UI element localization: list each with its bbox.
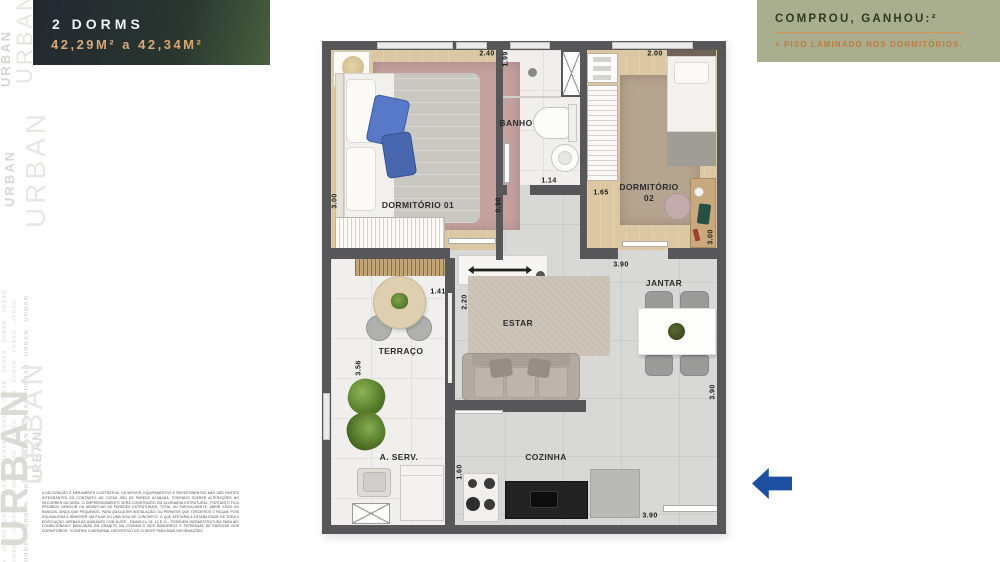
- living-rug: [468, 276, 610, 356]
- dimension-label: 1.60: [457, 464, 464, 479]
- room-label-living: ESTAR: [503, 318, 533, 328]
- window: [456, 42, 487, 49]
- service-cabinet: [352, 503, 390, 524]
- room-label-terrace: TERRAÇO: [379, 346, 424, 356]
- desk-cup: [694, 187, 704, 197]
- single-bed-blanket: [667, 132, 716, 166]
- bed-pillow: [346, 147, 376, 211]
- wall: [496, 50, 503, 260]
- page: URBAN URBAN URBAN URBAN URBAN URBAN URBA…: [0, 0, 1000, 562]
- wall: [322, 248, 450, 259]
- laptop: [697, 203, 711, 224]
- stove-burner: [484, 499, 495, 510]
- dimension-label: 3.90: [642, 513, 657, 520]
- dining-chair: [680, 355, 709, 376]
- unit-header: 2 DORMS 42,29M² a 42,34M²: [33, 0, 270, 65]
- dimension-label: 2.00: [647, 51, 662, 58]
- room-label-dining: JANTAR: [646, 278, 682, 288]
- dimension-label: 3.56: [356, 360, 363, 375]
- terrace-table-plant: [391, 293, 408, 309]
- room-label-bedroom2-number: 02: [644, 193, 654, 203]
- dimension-label: 3.00: [332, 193, 339, 208]
- outer-wall-right: [717, 41, 726, 534]
- window: [323, 393, 330, 440]
- stove-burner: [468, 479, 477, 488]
- sofa-back: [472, 354, 570, 366]
- dimension-label: 2.20: [462, 294, 469, 309]
- floor-plan: DORMITÓRIO 01 BANHO DORMITÓRIO 02 ESTAR …: [322, 41, 726, 534]
- sofa-pillow: [489, 358, 513, 379]
- dimension-label: 1.14: [541, 178, 556, 185]
- room-label-bedroom1: DORMITÓRIO 01: [382, 200, 454, 210]
- room-label-service: A. SERV.: [380, 452, 419, 462]
- dimension-label: 1.99: [503, 51, 510, 66]
- toilet-tank: [568, 104, 577, 142]
- window: [377, 42, 453, 49]
- dimension-label: 2.40: [479, 51, 494, 58]
- entrance-arrow-icon: [752, 468, 792, 499]
- watermark-text: URBAN: [0, 30, 13, 87]
- wall: [580, 248, 618, 259]
- promo-title: COMPROU, GANHOU:²: [775, 13, 938, 25]
- unit-type-title: 2 DORMS: [52, 16, 144, 32]
- bedroom2-closet: [587, 85, 618, 181]
- dimension-label: 3.90: [710, 384, 717, 399]
- unit-area-subtitle: 42,29M² a 42,34M²: [51, 37, 203, 52]
- wall: [668, 248, 717, 259]
- dimension-label: 3.90: [613, 262, 628, 269]
- shelf-items: [593, 75, 611, 80]
- kitchen-sink: [530, 491, 558, 508]
- shower-head: [528, 68, 537, 77]
- wardrobe: [335, 217, 445, 250]
- dimension-label: 1.41: [430, 289, 445, 296]
- legal-disclaimer: A DECORAÇÃO É MERAMENTE ILUSTRATIVA. OS …: [42, 491, 239, 534]
- single-bed-pillow: [674, 62, 709, 84]
- wall: [496, 185, 507, 195]
- wall: [530, 185, 587, 195]
- outer-wall-bottom: [322, 525, 726, 534]
- watermark-text: URBAN: [20, 110, 52, 228]
- fridge: [590, 469, 640, 518]
- shower-glass: [503, 96, 561, 98]
- dimension-label: 3.00: [708, 229, 715, 244]
- room-label-bathroom: BANHO: [499, 118, 532, 128]
- dining-chair: [645, 355, 673, 376]
- dimension-label: 1.65: [593, 190, 608, 197]
- washing-machine-lid-line: [400, 475, 444, 476]
- room-label-bedroom2: DORMITÓRIO: [619, 182, 678, 192]
- kitchen-pass-door: [455, 410, 503, 414]
- entrance-door: [663, 505, 719, 512]
- bedroom2-door: [622, 241, 668, 247]
- bedroom1-door: [448, 238, 496, 244]
- laundry-tank-basin: [363, 472, 386, 492]
- urban-watermark: URBAN URBAN URBAN URBAN URBAN URBAN URBA…: [0, 0, 60, 562]
- dimension-label: 0.90: [496, 197, 503, 212]
- stove-burner: [484, 478, 495, 489]
- bathroom-door: [504, 143, 510, 183]
- table-plant: [668, 323, 685, 340]
- toilet: [533, 107, 569, 139]
- pouf-chair: [664, 193, 691, 220]
- watermark-text: URBAN: [0, 385, 37, 547]
- window: [510, 42, 550, 49]
- shelf-items: [593, 57, 611, 62]
- sliding-glass-door: [448, 293, 452, 383]
- promo-bullet: + PISO LAMINADO NOS DORMITÓRIOS.: [775, 40, 963, 49]
- watermark-text: URBAN: [2, 150, 17, 207]
- shaft: [561, 50, 582, 97]
- outer-wall-left: [322, 41, 331, 534]
- washing-machine: [400, 465, 444, 521]
- room-label-kitchen: COZINHA: [525, 452, 567, 462]
- promo-banner: COMPROU, GANHOU:² + PISO LAMINADO NOS DO…: [757, 0, 1000, 62]
- stove-burner: [466, 497, 480, 511]
- sink-basin: [558, 151, 572, 165]
- promo-divider: [775, 32, 963, 33]
- wall: [580, 50, 587, 258]
- sofa-pillow: [527, 357, 552, 378]
- shelf-items: [593, 66, 611, 71]
- window: [612, 42, 693, 49]
